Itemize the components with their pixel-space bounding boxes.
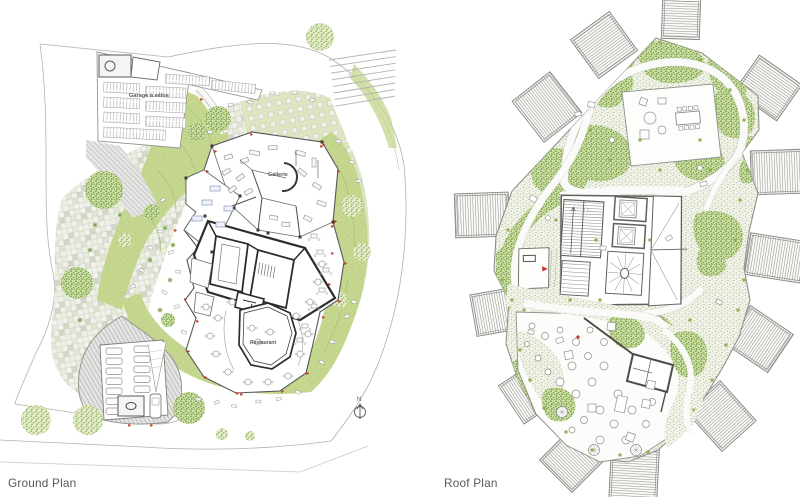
svg-text:N: N bbox=[357, 397, 361, 403]
svg-text:Gallerie: Gallerie bbox=[268, 172, 288, 178]
svg-text:Roof Plan: Roof Plan bbox=[444, 476, 498, 490]
svg-text:Ground Plan: Ground Plan bbox=[8, 476, 76, 490]
svg-text:Restaurant: Restaurant bbox=[250, 340, 276, 346]
svg-text:Garage à vélos: Garage à vélos bbox=[129, 93, 169, 99]
